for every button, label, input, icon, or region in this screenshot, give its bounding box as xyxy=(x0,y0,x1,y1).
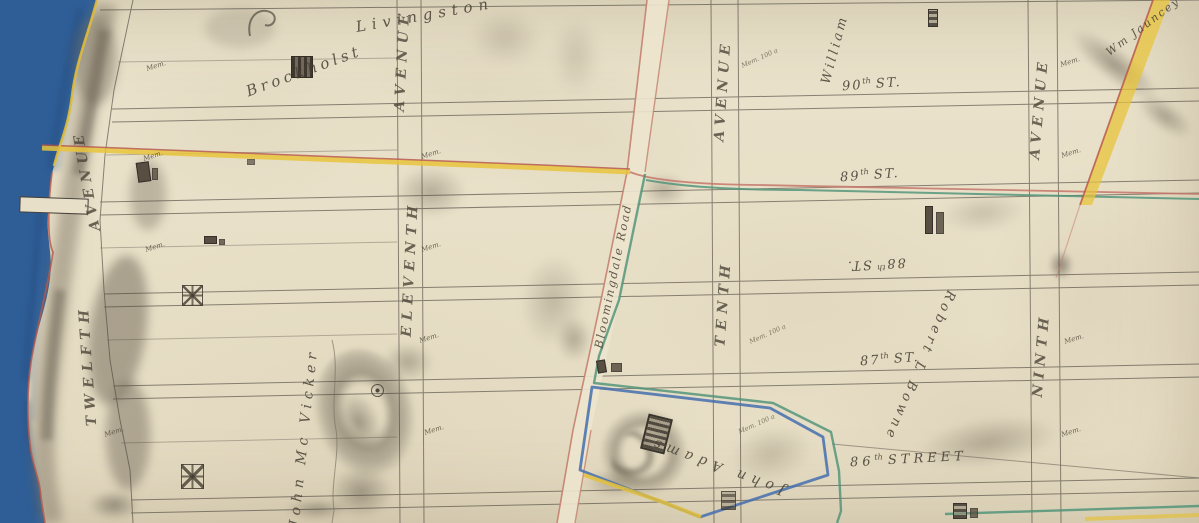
hill-summit-marker xyxy=(371,384,384,397)
building-symbol xyxy=(928,9,938,27)
street-label-88th: 88thST. xyxy=(846,254,907,273)
building-symbol xyxy=(925,206,933,234)
bloomingdale-road-edge-west xyxy=(557,0,647,523)
road-pink-89th xyxy=(630,172,1199,194)
map-canvas[interactable]: Brockholst Livingston William Wm Jauncey… xyxy=(0,0,1199,523)
old-road-yellow xyxy=(42,148,630,172)
building-symbol xyxy=(970,508,978,518)
building-symbol xyxy=(247,159,255,165)
building-symbol xyxy=(219,239,225,245)
building-symbol xyxy=(936,212,944,234)
building-symbol xyxy=(152,168,158,180)
pier xyxy=(20,197,88,214)
building-symbol xyxy=(204,236,217,244)
building-symbol xyxy=(136,161,152,183)
crosshatch-structure-symbol xyxy=(182,285,203,306)
crosshatch-structure-symbol xyxy=(181,464,204,489)
building-symbol xyxy=(721,491,736,510)
building-symbol xyxy=(953,503,967,519)
adams-parcel-yellow xyxy=(584,475,701,517)
map-linework xyxy=(0,0,1199,523)
building-symbol xyxy=(611,363,622,372)
